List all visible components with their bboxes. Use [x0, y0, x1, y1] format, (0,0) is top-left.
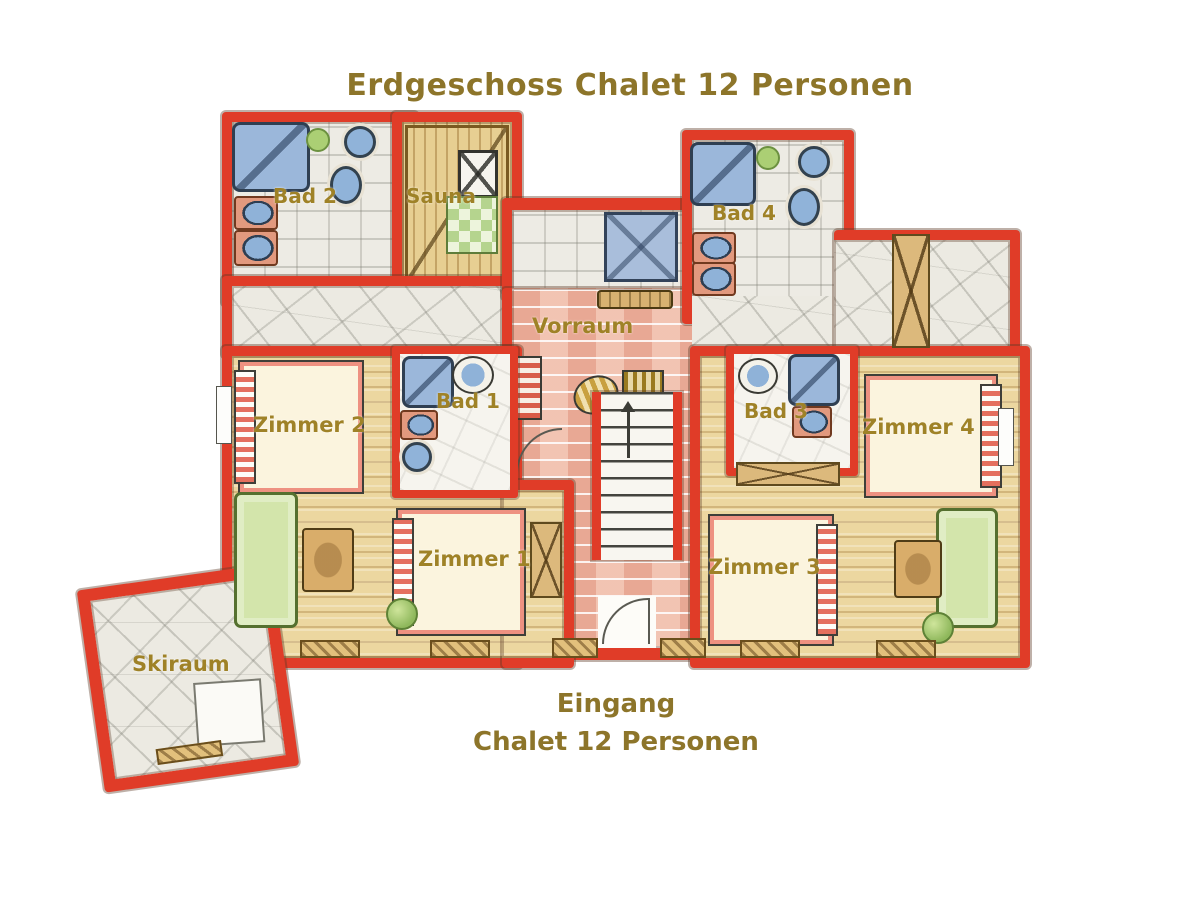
- label-bad1: Bad 1: [436, 389, 500, 413]
- threshold-zimmer1: [430, 640, 490, 658]
- window-zimmer2: [216, 386, 232, 444]
- caption-line2: Chalet 12 Personen: [32, 724, 1200, 762]
- wardrobe-under-bad3: [736, 462, 840, 486]
- floorplan-canvas: Erdgeschoss Chalet 12 Personen: [0, 0, 1200, 900]
- entrance-threshold-right: [660, 638, 706, 658]
- entrance-threshold-left: [552, 638, 598, 658]
- entrance-caption: Eingang Chalet 12 Personen: [32, 686, 1200, 761]
- label-sauna: Sauna: [406, 184, 476, 208]
- bed-zimmer3: [710, 516, 832, 644]
- sink-fixture-bad3: [738, 358, 778, 394]
- plant-dot-bad4: [756, 146, 780, 170]
- label-vorraum: Vorraum: [532, 314, 633, 338]
- toilet2-fixture-bad2: [234, 230, 278, 266]
- vorraum-shoe-rack: [514, 356, 542, 420]
- table-left: [302, 528, 354, 592]
- entrance-door-arc: [602, 598, 648, 644]
- hall-mid-right: [692, 296, 834, 348]
- toilet2-fixture-bad4: [692, 262, 736, 296]
- plant-left: [386, 598, 418, 630]
- shower-fixture-bad4: [690, 142, 756, 206]
- sink2-fixture-bad4: [788, 188, 820, 226]
- vorraum-bench: [597, 290, 673, 309]
- toilet-fixture-bad4: [692, 232, 736, 264]
- wardrobe-zimmer1: [530, 522, 562, 598]
- shower-fixture-bad2: [232, 122, 310, 192]
- bed-headboard: [816, 524, 838, 636]
- staircase: [592, 392, 682, 560]
- entrance-door-gap: [598, 596, 656, 648]
- sink-fixture-bad4: [798, 146, 830, 178]
- label-bad2: Bad 2: [273, 184, 337, 208]
- wardrobe-hall-right: [892, 234, 930, 348]
- threshold-zimmer4: [876, 640, 936, 658]
- threshold-zimmer3: [740, 640, 800, 658]
- sofa-right: [936, 508, 998, 628]
- caption-line1: Eingang: [32, 686, 1200, 724]
- plan-title: Erdgeschoss Chalet 12 Personen: [60, 68, 1200, 103]
- stairs-up-arrow-icon: [621, 394, 635, 412]
- sink-fixture-bad2: [344, 126, 376, 158]
- table-right: [894, 540, 942, 598]
- sink2-fixture-bad1: [402, 442, 432, 472]
- stairs-arrow-shaft: [627, 406, 630, 458]
- label-zimmer1: Zimmer 1: [418, 547, 531, 571]
- label-bad4: Bad 4: [712, 201, 776, 225]
- window-zimmer4: [998, 408, 1014, 466]
- label-skiraum: Skiraum: [132, 652, 230, 676]
- threshold-zimmer2: [300, 640, 360, 658]
- label-zimmer2: Zimmer 2: [253, 413, 366, 437]
- sofa-left: [234, 492, 298, 628]
- toilet-fixture-bad2: [234, 196, 278, 230]
- entrance-door-leaf: [648, 598, 651, 644]
- label-bad3: Bad 3: [744, 399, 808, 423]
- plant-dot-bad2: [306, 128, 330, 152]
- toilet-fixture-bad1: [400, 410, 438, 440]
- label-zimmer3: Zimmer 3: [708, 555, 821, 579]
- label-zimmer4: Zimmer 4: [862, 415, 975, 439]
- entrance-mat: [604, 212, 678, 282]
